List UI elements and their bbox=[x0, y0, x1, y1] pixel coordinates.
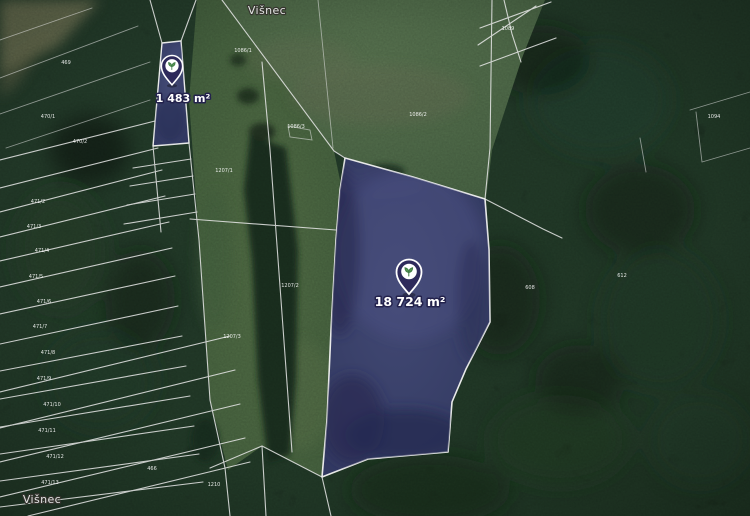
svg-text:471/5: 471/5 bbox=[29, 274, 43, 280]
svg-text:471/9: 471/9 bbox=[37, 376, 51, 382]
svg-text:469: 469 bbox=[61, 60, 71, 66]
svg-text:471/3: 471/3 bbox=[27, 224, 41, 230]
svg-text:1207/2: 1207/2 bbox=[281, 283, 299, 289]
svg-text:471/10: 471/10 bbox=[43, 402, 61, 408]
map-canvas[interactable]: 471/2 471/3 471/4 471/5 471/6 471/7 471/… bbox=[0, 0, 750, 516]
area-label-large: 18 724 m² bbox=[375, 294, 446, 309]
svg-text:1094: 1094 bbox=[708, 114, 721, 120]
svg-text:1086/1: 1086/1 bbox=[234, 48, 252, 54]
svg-text:470/1: 470/1 bbox=[41, 114, 55, 120]
svg-text:471/7: 471/7 bbox=[33, 324, 47, 330]
svg-text:612: 612 bbox=[617, 273, 627, 279]
place-label-visnec-bottom: Višnec bbox=[23, 493, 61, 506]
svg-text:470/2: 470/2 bbox=[73, 139, 87, 145]
svg-text:1086/2: 1086/2 bbox=[409, 112, 427, 118]
svg-text:1207/3: 1207/3 bbox=[223, 334, 241, 340]
svg-text:471/8: 471/8 bbox=[41, 350, 55, 356]
svg-text:1210: 1210 bbox=[208, 482, 221, 488]
svg-text:471/4: 471/4 bbox=[35, 248, 49, 254]
svg-text:1089: 1089 bbox=[502, 26, 515, 32]
svg-text:471/11: 471/11 bbox=[38, 428, 56, 434]
place-label-visnec-top: Višnec bbox=[248, 4, 286, 17]
svg-text:466: 466 bbox=[147, 466, 157, 472]
svg-text:608: 608 bbox=[525, 285, 535, 291]
satellite-map[interactable]: 471/2 471/3 471/4 471/5 471/6 471/7 471/… bbox=[0, 0, 750, 516]
area-label-small: 1 483 m² bbox=[156, 92, 211, 105]
svg-text:1086/3: 1086/3 bbox=[287, 124, 305, 130]
svg-text:471/12: 471/12 bbox=[46, 454, 64, 460]
svg-text:471/6: 471/6 bbox=[37, 299, 51, 305]
svg-text:471/13: 471/13 bbox=[41, 480, 59, 486]
svg-text:1207/1: 1207/1 bbox=[215, 168, 233, 174]
svg-text:471/2: 471/2 bbox=[31, 199, 45, 205]
